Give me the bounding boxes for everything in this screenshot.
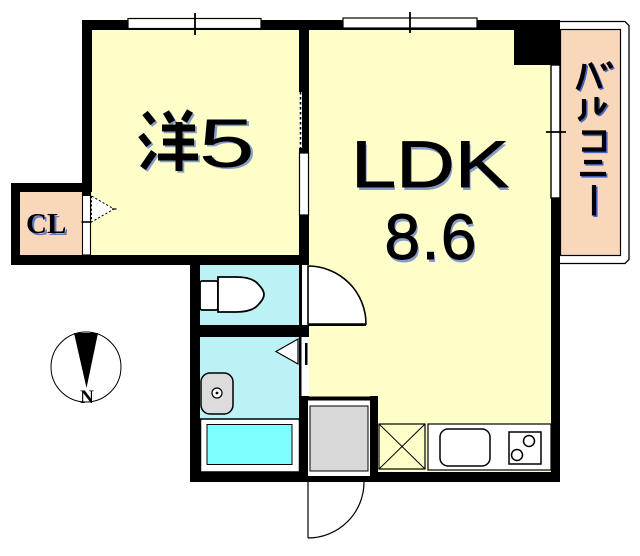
- svg-text:LDK: LDK: [351, 127, 509, 201]
- svg-text:CL: CL: [26, 208, 66, 240]
- svg-text:5: 5: [199, 105, 255, 182]
- svg-text:N: N: [80, 387, 94, 408]
- svg-text:8.6: 8.6: [385, 201, 477, 273]
